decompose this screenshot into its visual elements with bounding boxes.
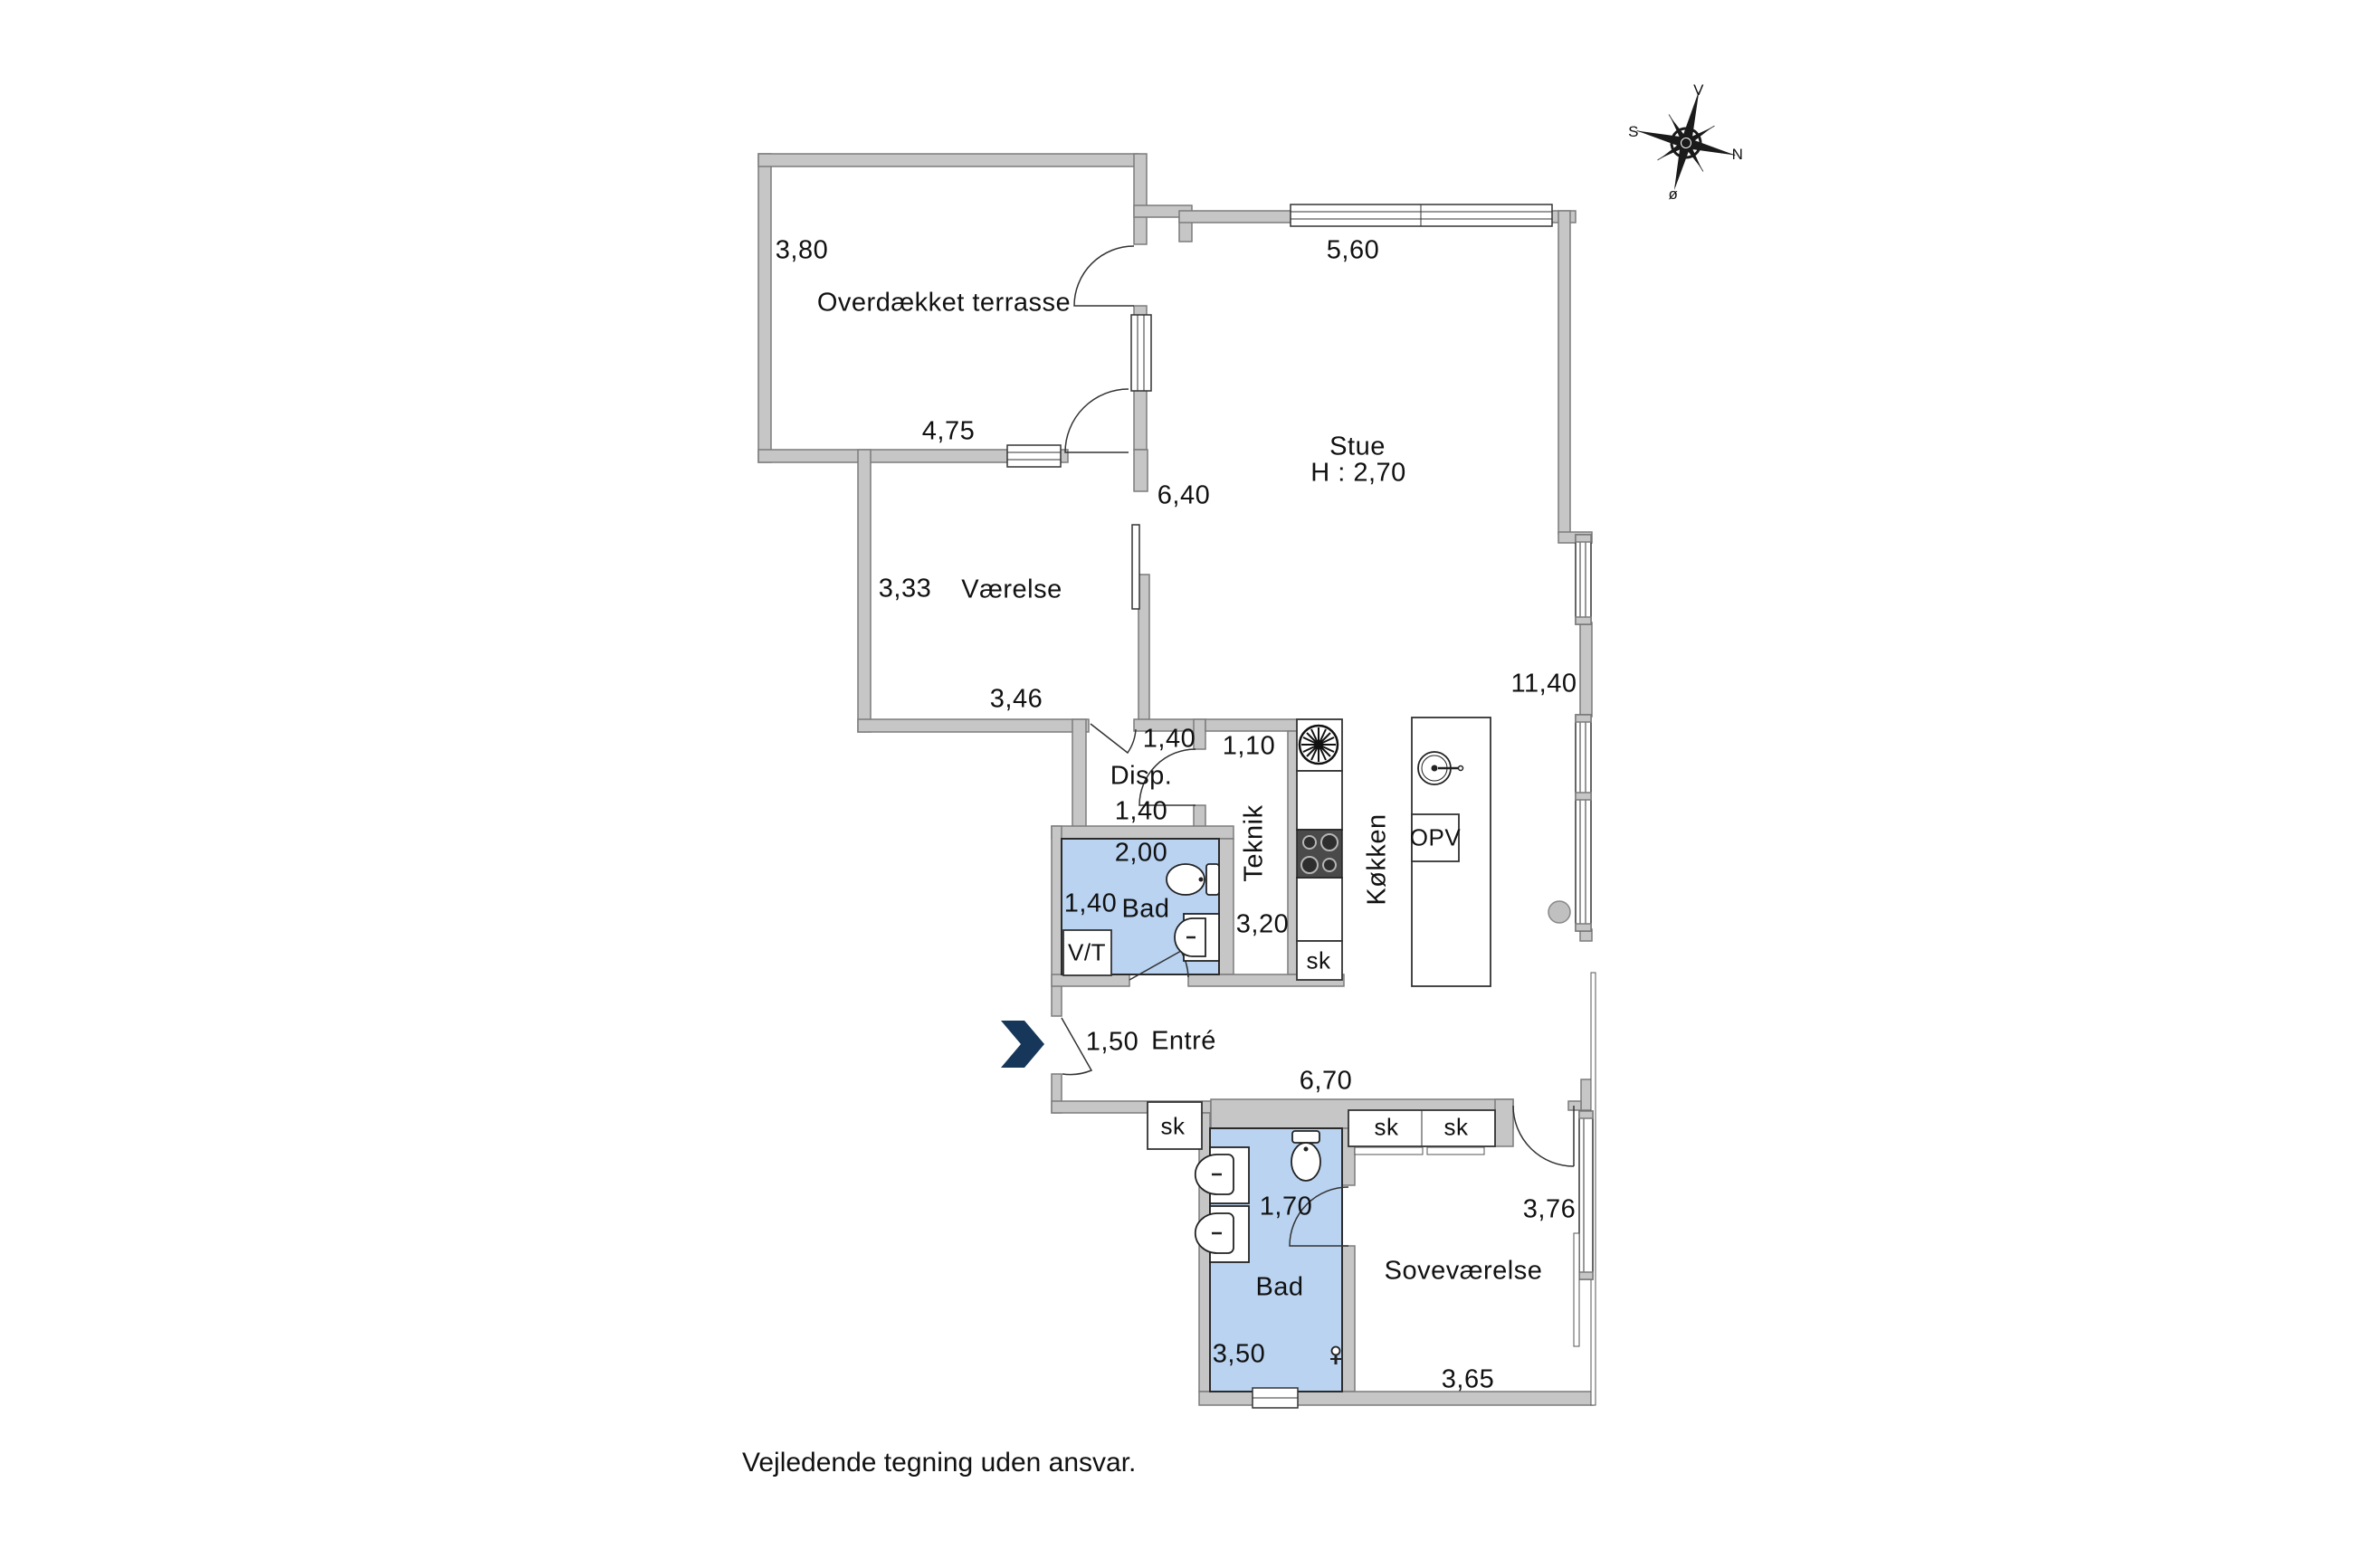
dim-sovevaerelse-right: 3,76 <box>1523 1195 1576 1225</box>
floor-plan-drawing <box>0 0 2353 1568</box>
ceiling-height-stue: H : 2,70 <box>1310 459 1406 489</box>
closet-label-sk-bedroom-1: sk <box>1375 1114 1399 1142</box>
compass-label-n: N <box>1732 146 1744 164</box>
toilet-icon-bad1 <box>1167 864 1219 895</box>
dim-terrace-bottom: 4,75 <box>922 417 975 447</box>
dim-bad2-bottom: 3,50 <box>1213 1340 1265 1370</box>
room-label-sovevaerelse: Soveværelse <box>1385 1257 1543 1287</box>
closet-label-sk-kitchen: sk <box>1307 947 1331 975</box>
closet-label-vt: V/T <box>1068 939 1106 967</box>
toilet-icon-bad2 <box>1291 1131 1320 1181</box>
dim-bad1-top: 2,00 <box>1115 839 1167 869</box>
pillar <box>1548 901 1570 923</box>
compass-label-s: S <box>1628 123 1639 141</box>
dim-teknik-bottom: 3,20 <box>1236 910 1289 940</box>
room-label-entre: Entré <box>1151 1027 1216 1057</box>
room-label-terrace: Overdækket terrasse <box>817 289 1071 318</box>
room-label-vaerelse: Værelse <box>961 575 1062 605</box>
room-label-koekken: Køkken <box>1363 813 1393 905</box>
dim-teknik-top: 1,10 <box>1223 732 1275 762</box>
dim-entre-door: 1,50 <box>1086 1028 1138 1058</box>
dim-bad1-left: 1,40 <box>1064 889 1117 919</box>
disclaimer-text: Vejledende tegning uden ansvar. <box>742 1448 1136 1478</box>
cooktop-icon <box>1297 830 1342 878</box>
room-label-teknik: Teknik <box>1240 804 1270 881</box>
room-label-bad1: Bad <box>1121 895 1169 925</box>
floor-plan-page: 3,80 Overdækket terrasse 4,75 5,60 Stue … <box>0 0 2353 1568</box>
room-label-bad2: Bad <box>1255 1273 1303 1303</box>
dim-bad2-top: 1,70 <box>1260 1193 1312 1222</box>
appliance-label-opv: OPV <box>1410 824 1461 852</box>
closet-label-sk-bedroom-2: sk <box>1444 1114 1469 1142</box>
dim-vaerelse-left: 3,33 <box>879 575 931 604</box>
dim-terrace-side: 3,80 <box>776 236 828 266</box>
closet-label-sk-entre: sk <box>1161 1113 1186 1141</box>
compass-label-o: ø <box>1669 185 1679 204</box>
compass-label-v: V <box>1693 81 1704 100</box>
compass-rose-icon <box>1625 78 1748 203</box>
dim-stue-left: 6,40 <box>1157 481 1210 511</box>
dim-entre-bottom: 6,70 <box>1300 1067 1352 1097</box>
extractor-fan-icon <box>1300 726 1338 764</box>
room-label-disp: Disp. <box>1110 762 1173 792</box>
entrance-arrow-icon <box>1001 1021 1044 1068</box>
dim-vaerelse-bottom: 3,46 <box>990 685 1043 715</box>
dim-stue-top: 5,60 <box>1327 236 1379 266</box>
dim-disp-bottom: 1,40 <box>1115 797 1167 827</box>
dim-sovevaerelse-bottom: 3,65 <box>1442 1365 1494 1395</box>
dim-stue-right: 11,40 <box>1511 670 1577 699</box>
dim-disp-top: 1,40 <box>1143 725 1196 755</box>
